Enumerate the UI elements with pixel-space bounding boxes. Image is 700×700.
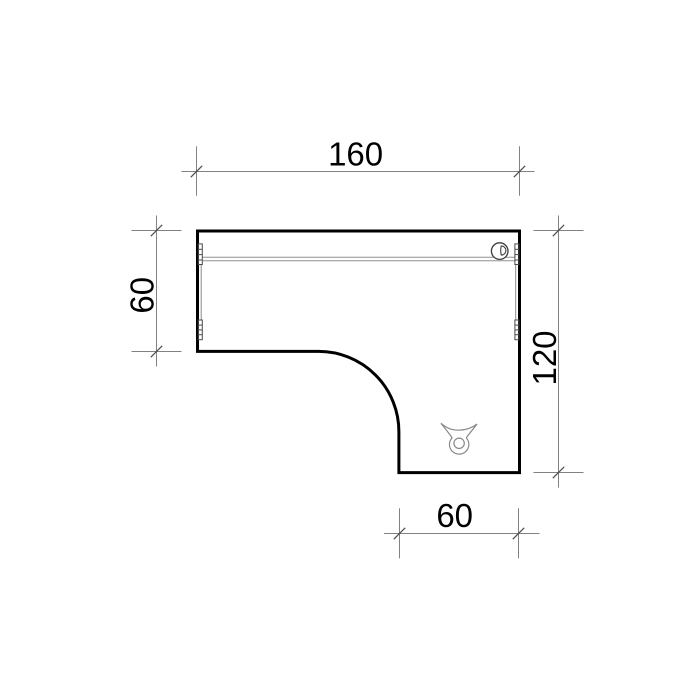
svg-text:120: 120 <box>526 330 563 385</box>
svg-text:160: 160 <box>328 135 383 172</box>
svg-text:60: 60 <box>436 497 473 534</box>
svg-text:60: 60 <box>124 277 161 314</box>
